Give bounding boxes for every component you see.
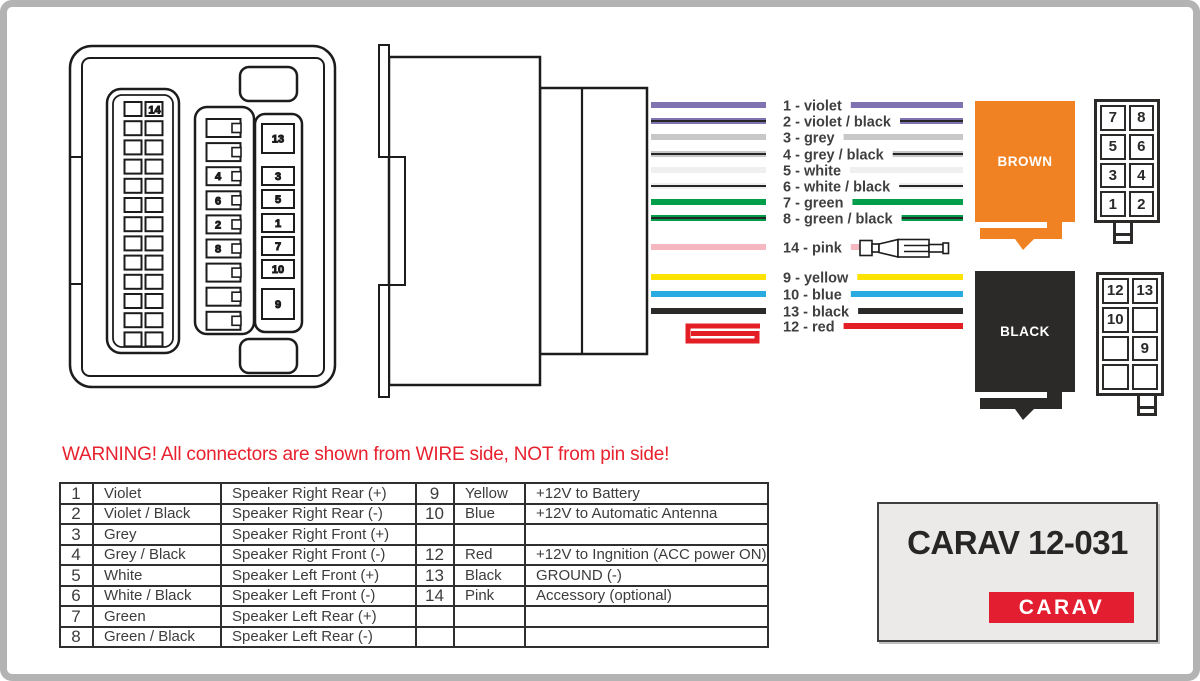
pin-number-label: 3 <box>275 171 281 183</box>
table-row: 1VioletSpeaker Right Rear (+)9Yellow+12V… <box>60 483 768 504</box>
housing-bottom-latch <box>240 339 297 373</box>
function-cell: +12V to Automatic Antenna <box>525 504 768 525</box>
table-row: 5WhiteSpeaker Left Front (+)13BlackGROUN… <box>60 565 768 586</box>
pin-cell-12: 12 <box>1102 278 1129 304</box>
wire-color-cell: Yellow <box>454 483 525 504</box>
function-cell: +12V to Ingnition (ACC power ON) <box>525 545 768 566</box>
black-block-label: BLACK <box>1000 324 1050 339</box>
pin-number-cell <box>416 606 454 627</box>
wire-color-cell: Black <box>454 565 525 586</box>
wire-label: 4 - grey / black <box>783 148 885 164</box>
side-view-plug-section <box>540 88 647 354</box>
wire-color-cell: Violet / Black <box>93 504 221 525</box>
table-row: 2Violet / BlackSpeaker Right Rear (-)10B… <box>60 504 768 525</box>
wire-label: 8 - green / black <box>783 212 894 228</box>
wire-label: 2 - violet / black <box>783 115 892 131</box>
black-block-tail-tip <box>1015 409 1034 420</box>
pin-number-cell: 7 <box>60 606 93 627</box>
pin-slot <box>125 256 142 270</box>
wire-color-cell: White <box>93 565 221 586</box>
table-row: 3GreySpeaker Right Front (+) <box>60 524 768 545</box>
pin-slot-notch <box>232 220 241 229</box>
warning-text: WARNING! All connectors are shown from W… <box>62 444 669 466</box>
brown-connector-block: BROWN <box>975 101 1075 250</box>
wire-label: 13 - black <box>783 305 850 321</box>
pin-number-cell: 1 <box>60 483 93 504</box>
pin-number-label: 9 <box>275 299 281 311</box>
function-cell: Speaker Right Rear (+) <box>221 483 416 504</box>
wire-color-cell: Red <box>454 545 525 566</box>
wire-label: 1 - violet <box>783 99 842 115</box>
pin-grid-brown: 78563412 <box>1094 99 1160 223</box>
pin-slot <box>146 256 163 270</box>
pin-cell-10: 10 <box>1102 307 1129 333</box>
wire-label: 9 - yellow <box>783 271 849 287</box>
pin-number-cell: 10 <box>416 504 454 525</box>
middle-pin-slots <box>207 119 242 330</box>
pin-grid-brown-latch <box>1113 223 1133 244</box>
pin-slot <box>125 294 142 308</box>
housing-top-latch <box>240 67 297 101</box>
pin-slot-notch <box>232 268 241 277</box>
pin-number-cell: 14 <box>416 586 454 607</box>
pin-cell-6: 6 <box>1129 134 1155 160</box>
pin-number-cell <box>416 524 454 545</box>
latch-divider <box>1115 233 1131 236</box>
black-block-tail <box>980 392 1062 409</box>
carav-logo: CARAV <box>989 592 1134 623</box>
table-row: 8Green / BlackSpeaker Left Rear (-) <box>60 627 768 648</box>
brown-block-label: BROWN <box>998 154 1053 169</box>
pin-grid-black: 1213109 <box>1096 272 1164 396</box>
wire-label: 5 - white <box>783 164 841 180</box>
pin-number-label: 13 <box>272 134 284 146</box>
wire-label: 7 - green <box>783 196 843 212</box>
pin-cell-empty <box>1102 336 1129 362</box>
pin-slot <box>146 294 163 308</box>
pin-slot <box>146 198 163 212</box>
function-cell <box>525 606 768 627</box>
pin-number-cell: 4 <box>60 545 93 566</box>
pin-cell-8: 8 <box>1129 105 1155 131</box>
pin-number-cell: 3 <box>60 524 93 545</box>
function-cell <box>525 524 768 545</box>
wire-color-cell: White / Black <box>93 586 221 607</box>
pin-number-cell <box>416 627 454 648</box>
function-cell: Speaker Right Rear (-) <box>221 504 416 525</box>
table-row: 7GreenSpeaker Left Rear (+) <box>60 606 768 627</box>
pin-number-cell: 12 <box>416 545 454 566</box>
pin-cell-1: 1 <box>1100 191 1126 217</box>
pin-number-label: 5 <box>275 194 281 206</box>
pin-slot-notch <box>232 244 241 253</box>
pin-slot <box>125 198 142 212</box>
pin-cell-empty <box>1132 307 1159 333</box>
function-cell: Speaker Left Rear (+) <box>221 606 416 627</box>
wire-label: 3 - grey <box>783 131 835 147</box>
pin-grid-black-latch <box>1137 396 1157 416</box>
pin-slot <box>146 140 163 154</box>
pin-slot <box>125 140 142 154</box>
brown-block-tail <box>980 222 1062 239</box>
pin-slot <box>125 121 142 135</box>
wire-color-cell <box>454 524 525 545</box>
pinout-table: 1VioletSpeaker Right Rear (+)9Yellow+12V… <box>59 482 769 648</box>
page-frame: 144628133517109 1 - violet2 - violet / b… <box>0 0 1200 681</box>
wire-color-cell: Green <box>93 606 221 627</box>
pin-slot <box>146 275 163 289</box>
pin-number-cell: 2 <box>60 504 93 525</box>
pin-slot-notch <box>232 292 241 301</box>
function-cell: Accessory (optional) <box>525 586 768 607</box>
front-view-connector: 144628133517109 <box>70 46 335 387</box>
model-title: CARAV 12-031 <box>879 524 1156 562</box>
wire-label: 14 - pink <box>783 241 843 257</box>
side-view-connector <box>379 45 647 397</box>
function-cell: GROUND (-) <box>525 565 768 586</box>
pin-number-label: 6 <box>215 195 221 207</box>
pin-slot-notch <box>232 316 241 325</box>
pin-number-label: 7 <box>275 241 281 253</box>
function-cell <box>525 627 768 648</box>
branding-box: CARAV 12-031 CARAV <box>877 502 1158 642</box>
bullet-connector-icon <box>860 240 949 258</box>
pin-slot <box>125 236 142 250</box>
pin-cell-empty <box>1132 364 1159 390</box>
pin-slot <box>146 236 163 250</box>
pin-slot <box>125 332 142 346</box>
pin-slot <box>125 313 142 327</box>
wire-color-cell: Grey <box>93 524 221 545</box>
wires-layer: 1 - violet2 - violet / black3 - grey4 - … <box>651 99 963 342</box>
pin-number-cell: 6 <box>60 586 93 607</box>
pin-slot <box>146 332 163 346</box>
pin-slot-notch <box>232 172 241 181</box>
function-cell: Speaker Left Front (-) <box>221 586 416 607</box>
pin-slot <box>125 179 142 193</box>
pin-number-label: 1 <box>275 218 281 230</box>
folded-wire <box>688 326 760 341</box>
pin-number-label: 14 <box>148 105 161 117</box>
wire-label: 12 - red <box>783 320 835 336</box>
pin-number-label: 8 <box>215 244 221 256</box>
pin-cell-3: 3 <box>1100 163 1126 189</box>
wire-label: 10 - blue <box>783 288 842 304</box>
pin-number-label: 2 <box>215 219 221 231</box>
wire-color-cell: Grey / Black <box>93 545 221 566</box>
pin-slot <box>125 275 142 289</box>
function-cell: Speaker Right Front (+) <box>221 524 416 545</box>
pin-slot <box>125 160 142 174</box>
pin-slot <box>125 102 142 116</box>
table-row: 4Grey / BlackSpeaker Right Front (-)12Re… <box>60 545 768 566</box>
pin-slot <box>146 179 163 193</box>
function-cell: +12V to Battery <box>525 483 768 504</box>
pin-slot <box>146 217 163 231</box>
black-connector-block: BLACK <box>975 271 1075 420</box>
wire-color-cell <box>454 627 525 648</box>
pin-number-cell: 8 <box>60 627 93 648</box>
latch-divider <box>1139 406 1155 409</box>
pin-slot <box>125 217 142 231</box>
function-cell: Speaker Left Front (+) <box>221 565 416 586</box>
pin-cell-2: 2 <box>1129 191 1155 217</box>
pin-cell-13: 13 <box>1132 278 1159 304</box>
wire-color-cell <box>454 606 525 627</box>
function-cell: Speaker Left Rear (-) <box>221 627 416 648</box>
wire-label: 6 - white / black <box>783 180 891 196</box>
pin-slot <box>146 121 163 135</box>
pin-number-cell: 5 <box>60 565 93 586</box>
pin-number-cell: 13 <box>416 565 454 586</box>
side-view-top-rib <box>379 45 389 157</box>
pin-cell-empty <box>1102 364 1129 390</box>
table-row: 6White / BlackSpeaker Left Front (-)14Pi… <box>60 586 768 607</box>
pin-slot-notch <box>232 124 241 133</box>
wire-color-cell: Pink <box>454 586 525 607</box>
wire-color-cell: Green / Black <box>93 627 221 648</box>
pin-slot <box>146 160 163 174</box>
wire-color-cell: Violet <box>93 483 221 504</box>
pin-slot-notch <box>232 196 241 205</box>
pin-slot <box>146 313 163 327</box>
brown-block-tail-tip <box>1015 239 1034 250</box>
pin-number-cell: 9 <box>416 483 454 504</box>
pin-number-label: 10 <box>272 264 284 276</box>
pin-cell-7: 7 <box>1100 105 1126 131</box>
side-view-bottom-rib <box>379 285 389 397</box>
function-cell: Speaker Right Front (-) <box>221 545 416 566</box>
pin-slot-notch <box>232 148 241 157</box>
pin-number-label: 4 <box>215 171 222 183</box>
left-pin-block <box>107 89 179 353</box>
pin-cell-4: 4 <box>1129 163 1155 189</box>
pin-cell-5: 5 <box>1100 134 1126 160</box>
wire-color-cell: Blue <box>454 504 525 525</box>
side-view-body <box>389 57 540 385</box>
pin-cell-9: 9 <box>1132 336 1159 362</box>
